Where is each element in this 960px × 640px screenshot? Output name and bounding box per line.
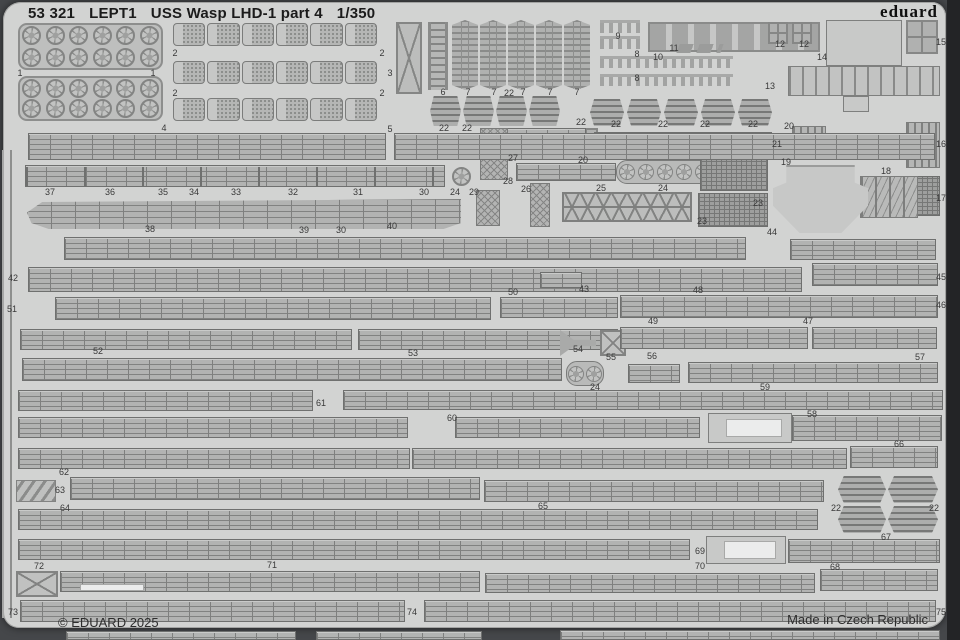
etch-part-rail	[18, 417, 408, 438]
etch-part-zpart	[16, 480, 56, 502]
wheel-disc	[46, 99, 65, 118]
part-number-label: 61	[316, 398, 326, 408]
part-number-label: 20	[578, 155, 588, 165]
etch-part-clips	[600, 56, 733, 68]
wheel-disc	[93, 99, 112, 118]
vehicle-etch	[310, 98, 342, 121]
part-number-label: 22	[439, 123, 449, 133]
wheel-disc	[22, 26, 41, 45]
eduard-logo: eduard	[880, 2, 938, 22]
etch-part-acc	[536, 20, 562, 90]
vehicle-etch	[207, 23, 239, 46]
part-number-label: 22	[831, 503, 841, 513]
vehicle-etch	[345, 61, 377, 84]
part-number-label: 2	[172, 88, 177, 98]
part-number-label: 55	[606, 352, 616, 362]
part-number-label: 7	[574, 87, 579, 97]
part-number-label: 22	[700, 119, 710, 129]
part-number-label: 69	[695, 546, 705, 556]
etch-part-rail	[343, 390, 943, 410]
part-number-label: 4	[161, 123, 166, 133]
vehicle-etch	[345, 98, 377, 121]
wheel-disc	[116, 99, 135, 118]
vehicle-etch	[310, 61, 342, 84]
etch-part-rail	[812, 327, 937, 349]
part-number-label: 8	[634, 73, 639, 83]
etch-part-acc	[480, 20, 506, 90]
etch-part-rail	[55, 297, 491, 320]
wheel-disc	[22, 48, 41, 67]
part-number-label: 14	[817, 52, 827, 62]
etch-part-acc	[452, 20, 478, 90]
wheel-disc	[69, 79, 88, 98]
part-number-label: 66	[894, 439, 904, 449]
part-number-label: 18	[881, 166, 891, 176]
etch-part-rail	[516, 163, 616, 181]
part-number-label: 67	[881, 532, 891, 542]
vehicle-etch	[345, 23, 377, 46]
part-number-label: 45	[936, 272, 946, 282]
vehicle-etch	[310, 23, 342, 46]
part-number-label: 59	[760, 382, 770, 392]
part-number-label: 30	[419, 187, 429, 197]
part-number-label: 2	[172, 48, 177, 58]
part-number-label: 65	[538, 501, 548, 511]
vehicle-etch	[276, 98, 308, 121]
etch-part-wheels	[18, 76, 163, 121]
wheel-disc	[140, 48, 159, 67]
etch-part-railseg	[25, 165, 445, 187]
part-number-label: 75	[936, 607, 946, 617]
part-number-label: 23	[697, 216, 707, 226]
etch-part-raft	[838, 476, 886, 503]
part-number-label: 64	[60, 503, 70, 513]
vehicle-etch	[242, 98, 274, 121]
wheel-disc	[140, 99, 159, 118]
part-number-label: 42	[8, 273, 18, 283]
part-number-label: 22	[504, 88, 514, 98]
part-number-label: 20	[784, 121, 794, 131]
etch-part-rail	[688, 362, 938, 383]
wheel-disc	[116, 79, 135, 98]
wheel-disc	[69, 26, 88, 45]
part-number-label: 52	[93, 346, 103, 356]
part-number-label: 53	[408, 348, 418, 358]
part-number-label: 48	[693, 285, 703, 295]
vehicle-etch	[173, 61, 205, 84]
wheel-disc	[568, 366, 584, 382]
part-number-label: 13	[765, 81, 775, 91]
sheet-code: LEPT1	[89, 5, 137, 22]
scale: 1/350	[337, 5, 376, 22]
part-number-label: 12	[799, 39, 809, 49]
part-number-label: 15	[936, 37, 946, 47]
etch-part-acc	[508, 20, 534, 90]
part-number-label: 22	[576, 117, 586, 127]
part-number-label: 24	[590, 382, 600, 392]
sheet-title: 53 321 LEPT1 USS Wasp LHD-1 part 4 1/350	[28, 5, 375, 22]
part-number-label: 39	[299, 225, 309, 235]
part-number-label: 34	[189, 187, 199, 197]
vehicle-etch	[276, 61, 308, 84]
part-number-label: 29	[469, 187, 479, 197]
part-number-label: 33	[231, 187, 241, 197]
etch-part-grid4	[906, 20, 938, 54]
etch-part-rail	[316, 631, 482, 640]
etch-part-rail	[20, 329, 352, 350]
etch-part-trucks	[172, 60, 378, 85]
part-number-label: 5	[387, 124, 392, 134]
part-number-label: 24	[450, 187, 460, 197]
catalog-number: 53 321	[28, 5, 75, 22]
etch-part-lattice	[530, 183, 550, 227]
part-number-label: 27	[508, 153, 518, 163]
etch-part-raft	[627, 99, 661, 126]
wheel-disc	[452, 167, 471, 186]
etch-part-rail	[628, 364, 680, 383]
part-number-label: 28	[503, 176, 513, 186]
part-number-label: 21	[772, 139, 782, 149]
etch-part-rail	[560, 630, 940, 640]
part-number-label: 50	[508, 287, 518, 297]
vehicle-etch	[276, 23, 308, 46]
etch-part-rail	[66, 631, 296, 640]
part-number-label: 35	[158, 187, 168, 197]
etch-part-rail	[412, 448, 847, 469]
etch-part-lattice	[476, 190, 500, 226]
part-number-label: 8	[634, 49, 639, 59]
part-number-label: 72	[34, 561, 44, 571]
part-number-label: 56	[647, 351, 657, 361]
etch-part-rail	[28, 267, 802, 292]
part-number-label: 24	[658, 183, 668, 193]
etch-part-densegrid	[700, 155, 768, 191]
part-number-label: 54	[573, 344, 583, 354]
etch-part-raft	[529, 96, 560, 126]
etch-part-white	[724, 541, 776, 559]
etch-part-xframe	[396, 22, 422, 94]
copyright-text: © EDUARD 2025	[58, 615, 159, 630]
part-number-label: 2	[379, 48, 384, 58]
part-number-label: 22	[658, 119, 668, 129]
part-number-label: 10	[653, 52, 663, 62]
etch-part-rail	[620, 327, 808, 349]
vehicle-etch	[173, 98, 205, 121]
part-number-label: 1	[17, 68, 22, 78]
part-number-label: 58	[807, 409, 817, 419]
wheel-disc	[586, 366, 602, 382]
part-number-label: 25	[596, 183, 606, 193]
part-number-label: 73	[8, 607, 18, 617]
etch-part-towers	[860, 176, 918, 218]
etch-part-white	[80, 584, 144, 591]
wheel-disc	[93, 48, 112, 67]
part-number-label: 32	[288, 187, 298, 197]
part-number-label: 31	[353, 187, 363, 197]
wheel-disc	[46, 48, 65, 67]
origin-text: Made in Czech Republic	[787, 612, 928, 627]
etch-part-rail	[18, 509, 818, 530]
wheel-disc	[676, 164, 692, 180]
part-number-label: 74	[407, 607, 417, 617]
part-number-label: 38	[145, 224, 155, 234]
etch-part-raft	[888, 476, 938, 503]
etch-part-plain	[843, 96, 869, 112]
wheel-disc	[93, 26, 112, 45]
wheel-disc	[116, 48, 135, 67]
wheel-disc	[22, 99, 41, 118]
part-number-label: 57	[915, 352, 925, 362]
etch-part-rail	[18, 390, 313, 411]
etch-part-rail	[22, 358, 562, 381]
etch-part-rail	[788, 539, 940, 563]
etch-part-trucks	[172, 22, 378, 47]
etch-part-raft	[430, 96, 461, 126]
part-number-label: 62	[59, 467, 69, 477]
etch-part-truss	[562, 192, 692, 222]
etched-sheet-scan: { "header": { "catalog": "53 321", "code…	[0, 0, 960, 640]
part-number-label: 1	[150, 68, 155, 78]
part-number-label: 70	[695, 561, 705, 571]
etch-part-rail	[70, 477, 480, 500]
wheel-disc	[638, 164, 654, 180]
etch-part-rail	[18, 448, 410, 469]
part-number-label: 23	[753, 198, 763, 208]
etch-part-rail	[540, 272, 582, 288]
part-number-label: 22	[611, 119, 621, 129]
part-number-label: 7	[491, 87, 496, 97]
part-number-label: 30	[336, 225, 346, 235]
etch-part-rail	[18, 539, 690, 560]
etch-part-rail	[790, 239, 936, 260]
part-number-label: 19	[781, 157, 791, 167]
etch-part-rail	[500, 297, 618, 318]
part-number-label: 71	[267, 560, 277, 570]
part-number-label: 9	[615, 31, 620, 41]
etch-part-wheel1	[447, 164, 475, 188]
part-number-label: 7	[465, 87, 470, 97]
etch-part-rail	[820, 569, 938, 591]
wheel-disc	[140, 26, 159, 45]
part-number-label: 3	[387, 68, 392, 78]
part-number-label: 22	[748, 119, 758, 129]
etch-part-acc	[564, 20, 590, 90]
etch-part-rail	[620, 295, 938, 318]
part-number-label: 60	[447, 413, 457, 423]
part-number-label: 68	[830, 562, 840, 572]
etch-part-plain	[826, 20, 902, 66]
etch-part-wheels	[18, 23, 163, 70]
etch-part-trucks	[172, 97, 378, 122]
etch-part-rail	[455, 417, 700, 438]
etch-part-raft	[838, 506, 886, 533]
part-number-label: 37	[45, 187, 55, 197]
part-number-label: 51	[7, 304, 17, 314]
vehicle-etch	[207, 98, 239, 121]
parts-layer: 1122223456772277798810111212131415222222…	[0, 0, 960, 640]
kit-title: USS Wasp LHD-1 part 4	[151, 5, 323, 22]
etch-part-rail	[850, 446, 938, 468]
part-number-label: 63	[55, 485, 65, 495]
part-number-label: 7	[520, 87, 525, 97]
vehicle-etch	[242, 61, 274, 84]
part-number-label: 11	[669, 43, 678, 53]
part-number-label: 6	[440, 87, 445, 97]
wheel-disc	[657, 164, 673, 180]
part-number-label: 12	[775, 39, 785, 49]
part-number-label: 43	[579, 284, 589, 294]
part-number-label: 16	[936, 139, 946, 149]
etch-part-clips	[600, 74, 733, 86]
etch-part-xbox	[16, 571, 58, 597]
part-number-label: 2	[379, 88, 384, 98]
etch-part-rail	[394, 133, 935, 160]
etch-part-raft	[664, 99, 698, 126]
part-number-label: 40	[387, 221, 397, 231]
vehicle-etch	[207, 61, 239, 84]
wheel-disc	[619, 164, 635, 180]
wheel-disc	[69, 48, 88, 67]
part-number-label: 17	[936, 193, 946, 203]
etch-part-white	[726, 419, 782, 437]
wheel-disc	[140, 79, 159, 98]
etch-part-chev	[676, 44, 723, 53]
part-number-label: 22	[929, 503, 939, 513]
part-number-label: 26	[521, 184, 531, 194]
etch-part-rail	[28, 133, 386, 160]
wheel-disc	[93, 79, 112, 98]
etch-part-vladder	[428, 22, 448, 90]
etch-part-raft	[496, 96, 527, 126]
etch-part-funnel	[773, 165, 868, 233]
etch-part-raft	[463, 96, 494, 126]
vehicle-etch	[173, 23, 205, 46]
etch-part-rail	[484, 480, 824, 502]
etch-part-frame	[2, 150, 12, 618]
part-number-label: 46	[936, 300, 946, 310]
etch-part-rail	[812, 263, 938, 286]
part-number-label: 49	[648, 316, 658, 326]
part-number-label: 47	[803, 316, 813, 326]
wheel-disc	[46, 26, 65, 45]
part-number-label: 22	[462, 123, 472, 133]
vehicle-etch	[242, 23, 274, 46]
wheel-disc	[116, 26, 135, 45]
wheel-disc	[46, 79, 65, 98]
wheel-disc	[69, 99, 88, 118]
etch-part-rail	[64, 237, 746, 260]
part-number-label: 36	[105, 187, 115, 197]
part-number-label: 44	[767, 227, 777, 237]
etch-part-slats	[788, 66, 940, 96]
part-number-label: 7	[547, 87, 552, 97]
wheel-disc	[22, 79, 41, 98]
etch-part-rail	[485, 573, 815, 593]
